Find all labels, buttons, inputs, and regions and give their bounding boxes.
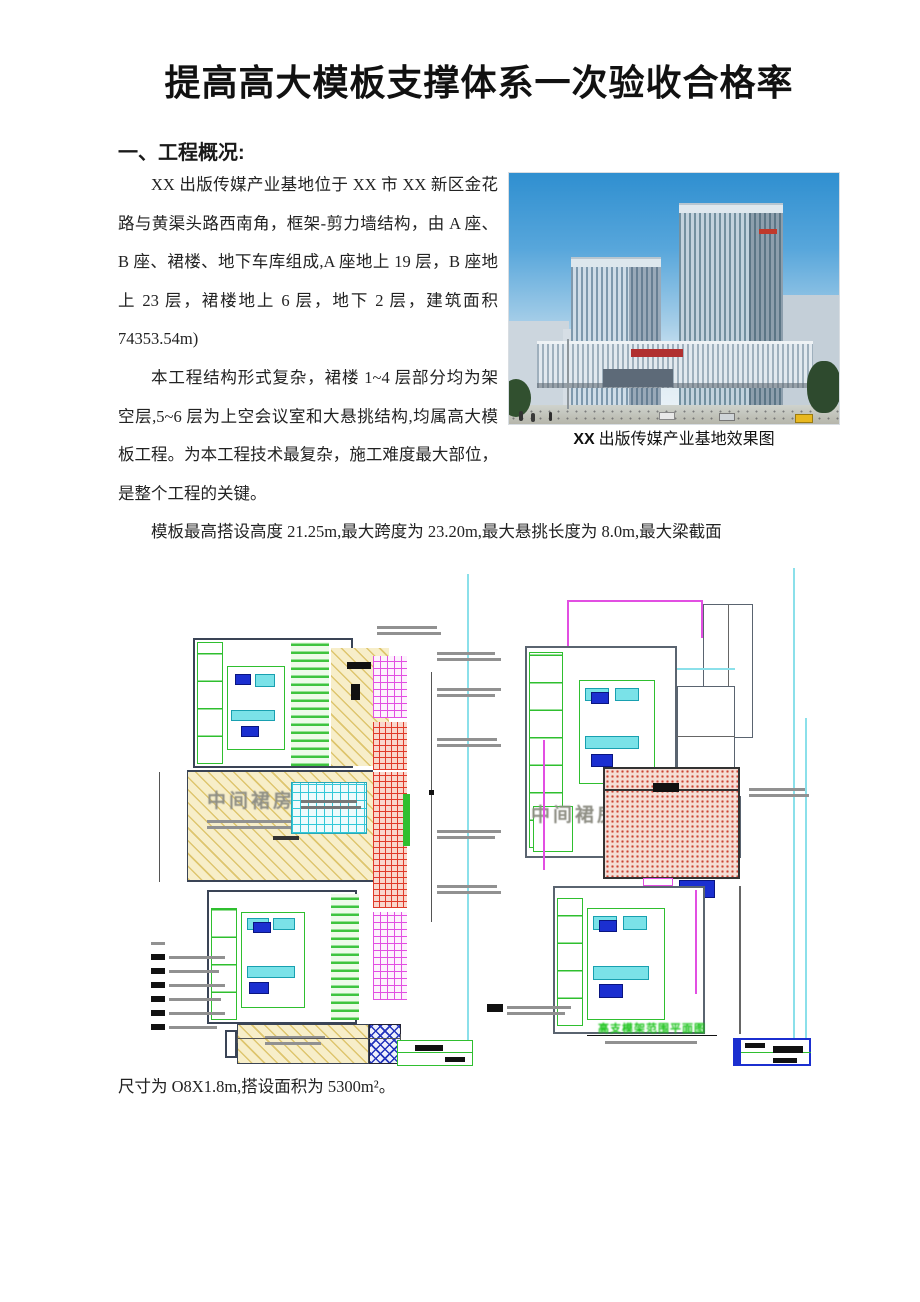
- grid-red-region: [373, 722, 407, 770]
- grid-pink-region: [373, 912, 407, 1000]
- hatch-green-stripes: [331, 894, 359, 1020]
- annotation-text: [265, 1042, 321, 1045]
- annotation-text: [207, 820, 299, 823]
- plan-shaft: [591, 754, 613, 767]
- legend-title: [151, 942, 165, 945]
- magenta-outline: [695, 890, 697, 994]
- plan-corridor: [197, 642, 223, 764]
- legend-label: [169, 970, 219, 973]
- hatch-green-stripes: [291, 642, 329, 766]
- plan-cell: [585, 736, 639, 749]
- plan-cell: [623, 916, 647, 930]
- annotation-text: [301, 800, 357, 803]
- plan-black-mark: [653, 783, 679, 792]
- title-block-text: [773, 1058, 797, 1063]
- legend-swatch: [151, 954, 165, 960]
- title-block-edge: [733, 1038, 741, 1066]
- annotation-text: [301, 806, 361, 809]
- tower-left-shade: [629, 267, 661, 413]
- car: [719, 413, 735, 421]
- plan-border-line: [467, 574, 469, 1042]
- person: [531, 413, 535, 422]
- annotation-text: [377, 626, 437, 629]
- document-content: 提高高大模板支撑体系一次验收合格率 一、工程概况:: [118, 0, 840, 1102]
- legend-label: [169, 1026, 217, 1029]
- tree: [807, 361, 840, 413]
- magenta-outline: [543, 740, 545, 870]
- legend-swatch: [151, 968, 165, 974]
- light-pole: [567, 339, 569, 409]
- wall-line: [677, 736, 735, 737]
- document-page: 提高高大模板支撑体系一次验收合格率 一、工程概况:: [0, 0, 920, 1302]
- plan-cell: [255, 674, 275, 687]
- grid-pink-region: [373, 656, 407, 718]
- magenta-outline: [567, 600, 703, 602]
- figure-caption: XX 出版传媒产业基地效果图: [508, 427, 840, 453]
- plan-black-mark: [351, 684, 360, 700]
- plan-shaft: [599, 984, 623, 998]
- car: [659, 412, 675, 420]
- green-bar: [403, 794, 410, 846]
- podium-shadow: [537, 383, 813, 388]
- magenta-outline: [567, 600, 569, 646]
- legend-label: [169, 956, 225, 959]
- plan-shaft: [599, 920, 617, 932]
- paragraph-dimensions: 尺寸为 O8X1.8m,搭设面积为 5300m²。: [118, 1072, 840, 1102]
- legend-label: [507, 1012, 565, 1015]
- dimension-line: [237, 1038, 401, 1039]
- plan-shaft: [591, 692, 609, 704]
- building-rendering-image: [508, 172, 840, 425]
- legend-label: [169, 1012, 225, 1015]
- title-block-text: [445, 1057, 465, 1062]
- title-block-text: [415, 1045, 443, 1051]
- plan-caption: 高支模架范围平面图: [587, 1020, 717, 1034]
- plan-border-line: [805, 718, 807, 1064]
- grid-red-strip: [373, 772, 407, 908]
- dimension-line: [431, 672, 432, 922]
- plan-corridor: [211, 908, 237, 1020]
- plan-cell: [593, 966, 649, 980]
- annotation-text: [207, 826, 303, 829]
- plan-black-mark: [273, 836, 299, 840]
- plan-cell: [615, 688, 639, 701]
- caption-underline: [587, 1035, 717, 1037]
- plan-cell: [247, 966, 295, 978]
- page-title: 提高高大模板支撑体系一次验收合格率: [118, 60, 840, 106]
- wall-line: [739, 886, 741, 1034]
- plan-cell: [231, 710, 275, 721]
- title-block-line: [397, 1052, 473, 1053]
- floor-plan-left: 中间裙房: [145, 568, 475, 1070]
- annotation-text: [749, 788, 805, 791]
- annotation-text: [377, 632, 441, 635]
- legend-swatch: [151, 1024, 165, 1030]
- section-heading: 一、工程概况:: [118, 140, 840, 166]
- floor-plans-figure: 中间裙房: [118, 568, 840, 1070]
- plan-shaft: [253, 922, 271, 933]
- annotation-text: [749, 794, 809, 797]
- legend-label: [169, 984, 225, 987]
- legend-swatch: [151, 1010, 165, 1016]
- plan-shaft: [235, 674, 251, 685]
- person: [519, 411, 523, 421]
- dimension-tick: [429, 790, 434, 795]
- legend-label: [507, 1006, 571, 1009]
- person: [549, 412, 552, 421]
- legend-swatch: [151, 982, 165, 988]
- dimension-line: [159, 772, 160, 882]
- figure-caption-text: 出版传媒产业基地效果图: [595, 431, 775, 448]
- title-block-text: [745, 1043, 765, 1048]
- podium-opening: [603, 369, 673, 387]
- plan-border-line: [793, 568, 795, 1064]
- taxi: [795, 414, 813, 423]
- building-figure: XX 出版传媒产业基地效果图: [508, 172, 840, 453]
- podium-sign: [631, 349, 683, 357]
- wall-stub: [225, 1030, 237, 1058]
- dimension-tick: [237, 1034, 238, 1043]
- legend-label: [169, 998, 221, 1001]
- plan-cell: [273, 918, 295, 930]
- magenta-box: [643, 878, 673, 886]
- title-block-text: [773, 1046, 803, 1053]
- legend-swatch: [487, 1004, 503, 1012]
- floor-plan-right: 中间裙房: [487, 568, 817, 1070]
- plan-shaft: [241, 726, 259, 737]
- annotation-text: [605, 1041, 697, 1044]
- legend-swatch: [151, 996, 165, 1002]
- title-block: [397, 1040, 473, 1066]
- tower-logo: [759, 229, 777, 234]
- figure-caption-bold: XX: [573, 431, 594, 448]
- plan-shaft: [249, 982, 269, 994]
- plan-black-mark: [347, 662, 371, 669]
- paragraph-formwork: 模板最高搭设高度 21.25m,最大跨度为 23.20m,最大悬挑长度为 8.0…: [118, 513, 840, 552]
